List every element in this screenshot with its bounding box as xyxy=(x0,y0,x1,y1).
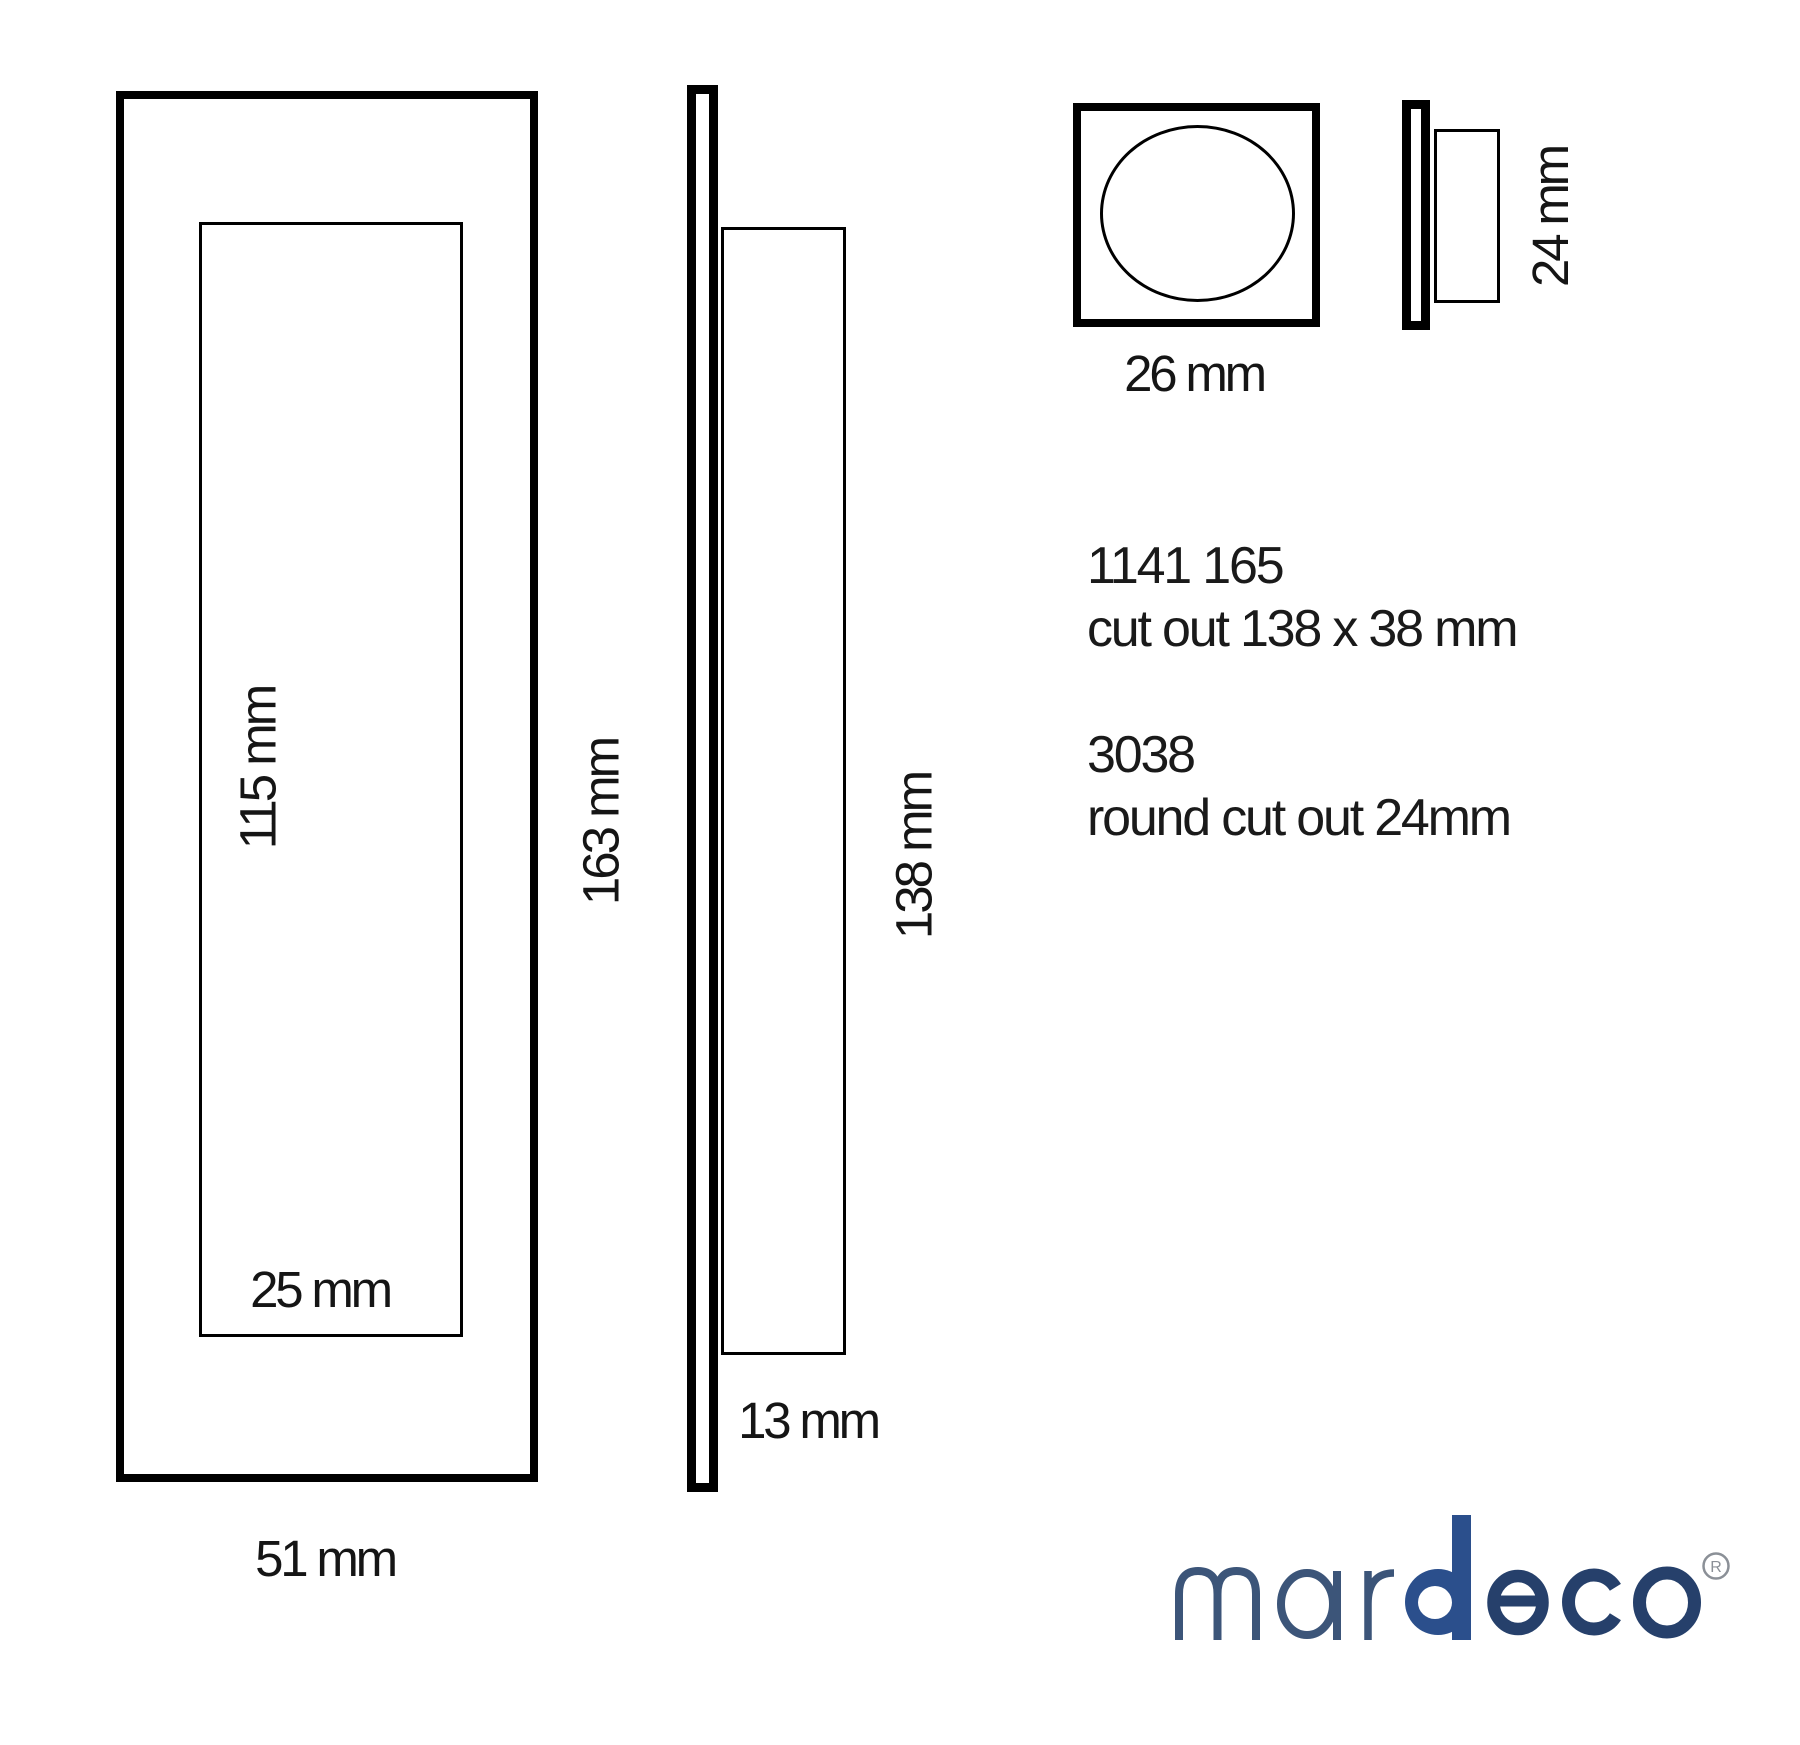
svg-text:R: R xyxy=(1710,1559,1722,1576)
